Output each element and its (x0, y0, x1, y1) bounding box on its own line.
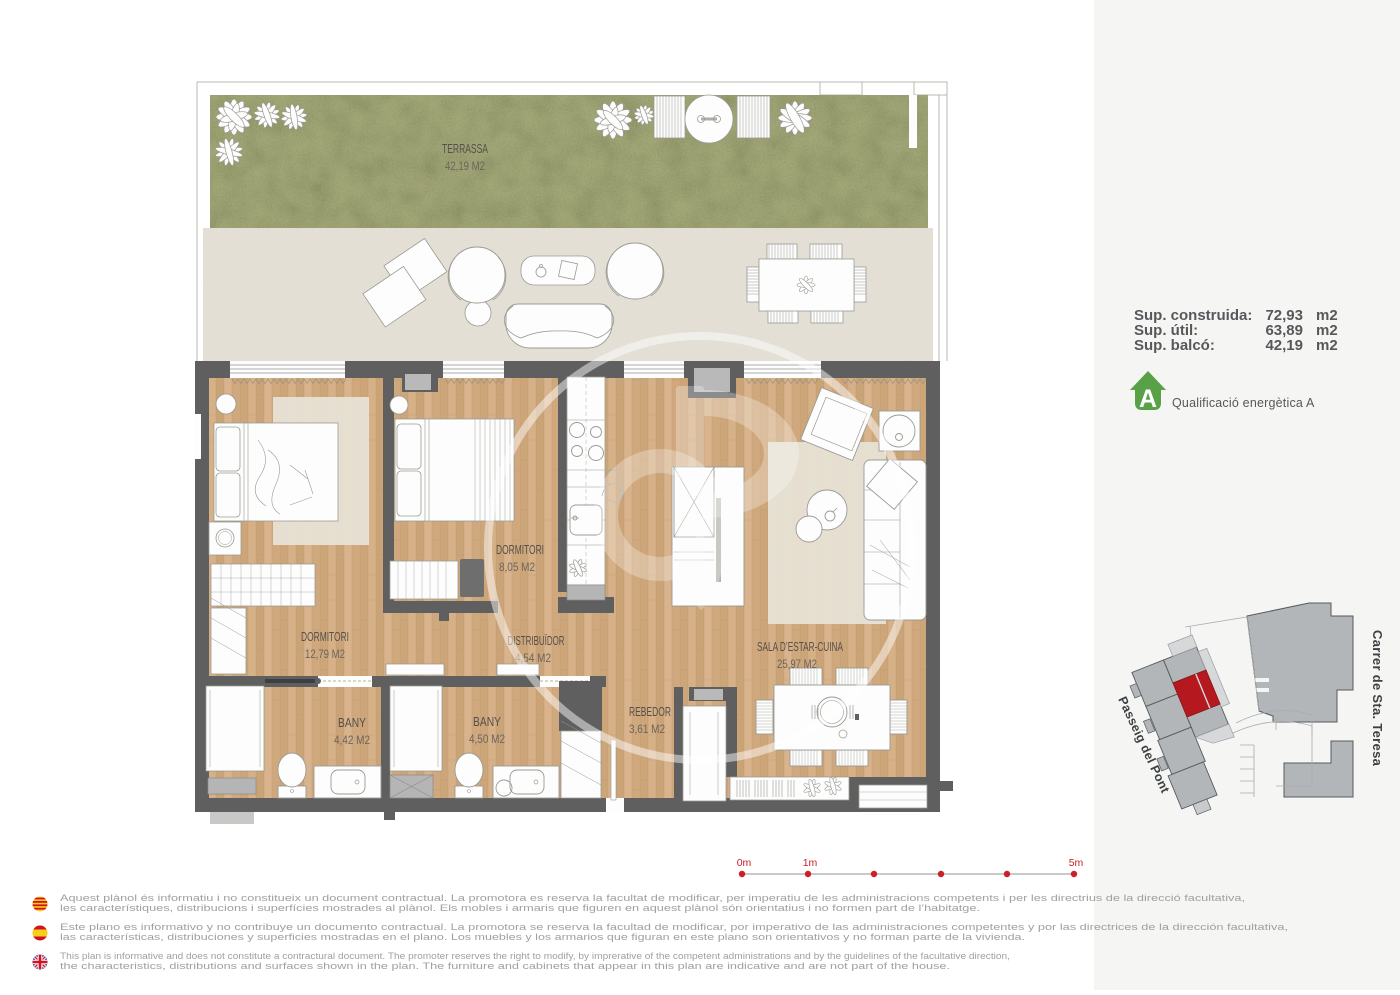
svg-text:This plan is informative and d: This plan is informative and does not co… (60, 951, 1010, 961)
svg-text:3,61 M2: 3,61 M2 (629, 724, 665, 736)
svg-text:DORMITORI: DORMITORI (496, 543, 544, 557)
svg-text:DORMITORI: DORMITORI (301, 630, 349, 644)
svg-text:Aquest plànol és informatiu i: Aquest plànol és informatiu i no constit… (60, 893, 1245, 903)
svg-text:4,42 M2: 4,42 M2 (334, 735, 370, 747)
svg-text:8,05 M2: 8,05 M2 (499, 562, 535, 574)
svg-text:Carrer de Sta. Teresa: Carrer de Sta. Teresa (1370, 630, 1385, 767)
svg-text:1m: 1m (803, 857, 818, 869)
svg-text:m2: m2 (1316, 337, 1338, 354)
svg-text:0m: 0m (737, 857, 752, 869)
svg-text:A: A (1139, 385, 1157, 413)
svg-text:42,19 M2: 42,19 M2 (445, 161, 485, 173)
svg-text:25,97 M2: 25,97 M2 (777, 659, 817, 671)
svg-text:BANY: BANY (473, 715, 502, 729)
svg-text:TERRASSA: TERRASSA (442, 142, 488, 156)
svg-text:les característiques, distribu: les característiques, distribucions i su… (60, 903, 980, 913)
svg-text:REBEDOR: REBEDOR (629, 705, 671, 719)
svg-text:12,79 M2: 12,79 M2 (305, 649, 345, 661)
svg-text:the characteristics, distribut: the characteristics, distributions and s… (60, 961, 950, 971)
svg-text:4,50 M2: 4,50 M2 (469, 734, 505, 746)
svg-text:las características, distribuc: las características, distribuciones y su… (60, 932, 1025, 942)
svg-text:BANY: BANY (338, 716, 367, 730)
svg-text:5m: 5m (1069, 857, 1084, 869)
svg-text:Qualificació energètica A: Qualificació energètica A (1172, 396, 1315, 410)
svg-text:Este plano es informativo y no: Este plano es informativo y no contribuy… (60, 922, 1288, 932)
svg-text:42,19: 42,19 (1265, 337, 1303, 354)
svg-text:SALA D’ESTAR-CUINA: SALA D’ESTAR-CUINA (757, 640, 843, 654)
svg-text:Sup. balcó:: Sup. balcó: (1134, 337, 1215, 354)
